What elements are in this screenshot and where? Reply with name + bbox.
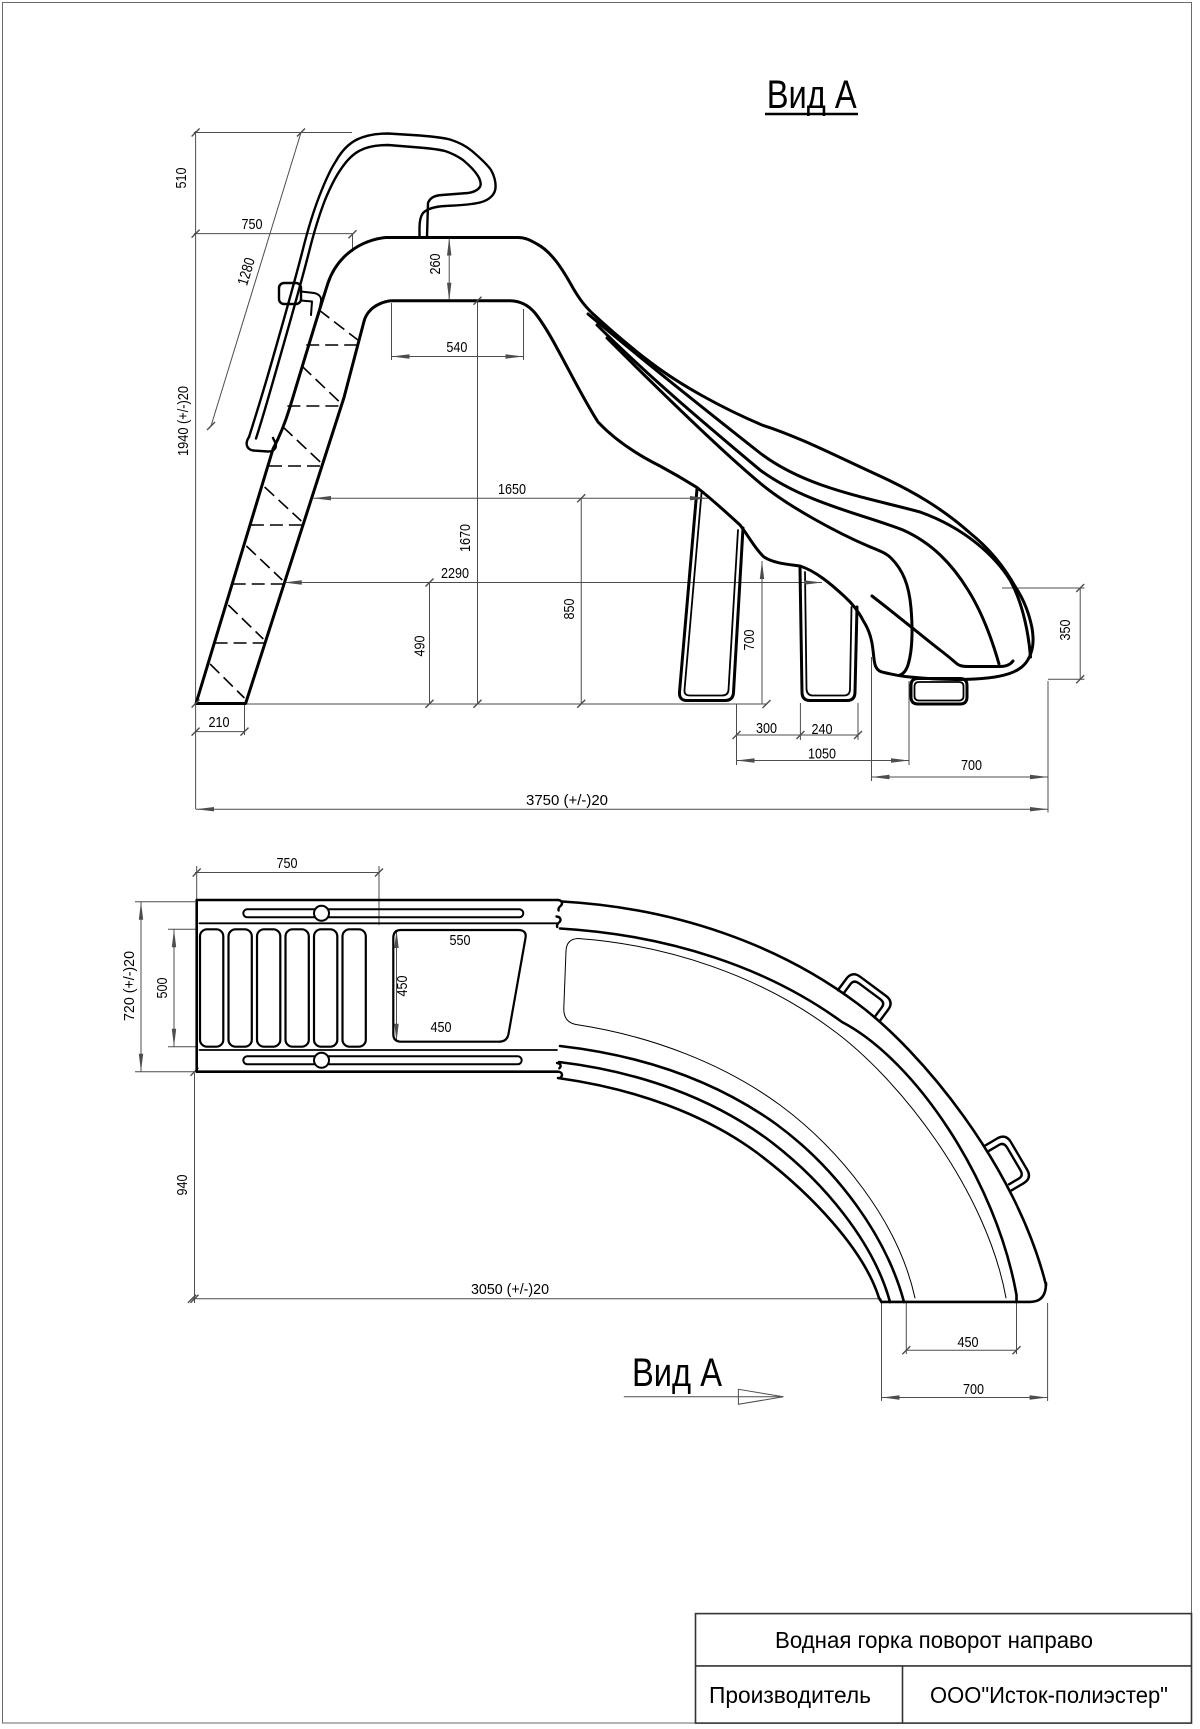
svg-text:510: 510 <box>173 168 190 189</box>
svg-text:500: 500 <box>154 978 171 999</box>
svg-text:700: 700 <box>741 630 758 651</box>
svg-text:Вид А: Вид А <box>767 73 857 117</box>
svg-text:210: 210 <box>209 714 230 731</box>
svg-text:3050 (+/-)20: 3050 (+/-)20 <box>471 1281 549 1298</box>
svg-text:550: 550 <box>450 932 471 949</box>
svg-text:350: 350 <box>1057 620 1074 641</box>
svg-text:700: 700 <box>963 1381 984 1398</box>
svg-text:850: 850 <box>561 599 578 620</box>
svg-text:540: 540 <box>446 339 467 356</box>
svg-text:700: 700 <box>961 757 982 774</box>
svg-text:Водная горка поворот направо: Водная горка поворот направо <box>775 1627 1093 1653</box>
svg-text:260: 260 <box>427 254 444 275</box>
svg-text:ООО"Исток-полиэстер": ООО"Исток-полиэстер" <box>930 1682 1168 1708</box>
svg-text:750: 750 <box>242 216 263 233</box>
svg-text:720 (+/-)20: 720 (+/-)20 <box>121 951 138 1021</box>
svg-text:1050: 1050 <box>808 746 836 763</box>
svg-text:2290: 2290 <box>441 565 469 582</box>
svg-text:300: 300 <box>756 720 777 737</box>
svg-text:Вид А: Вид А <box>632 1351 722 1395</box>
svg-text:240: 240 <box>812 721 833 738</box>
svg-text:1650: 1650 <box>498 481 526 498</box>
svg-text:450: 450 <box>394 976 411 997</box>
svg-text:940: 940 <box>174 1175 191 1196</box>
svg-text:490: 490 <box>412 636 429 657</box>
svg-text:1670: 1670 <box>457 524 474 552</box>
svg-text:1940 (+/-)20: 1940 (+/-)20 <box>175 386 192 456</box>
svg-text:450: 450 <box>431 1019 452 1036</box>
svg-text:750: 750 <box>277 855 298 872</box>
svg-text:3750 (+/-)20: 3750 (+/-)20 <box>526 792 608 809</box>
svg-text:450: 450 <box>958 1334 979 1351</box>
svg-text:Производитель: Производитель <box>709 1682 871 1708</box>
